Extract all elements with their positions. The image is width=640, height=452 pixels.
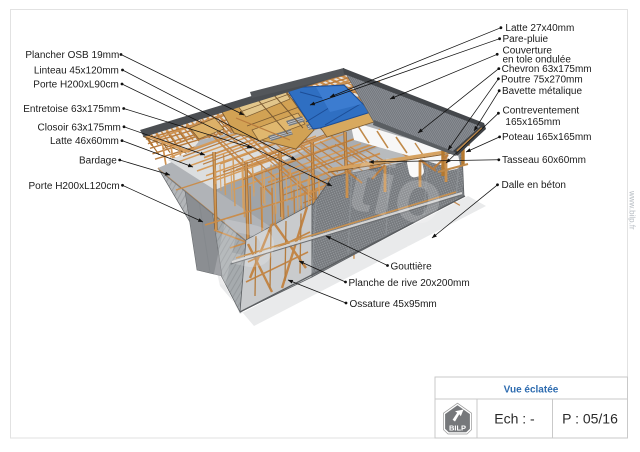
svg-text:Tasseau 60x60mm: Tasseau 60x60mm bbox=[502, 155, 586, 166]
svg-text:Porte H200xL120cm: Porte H200xL120cm bbox=[29, 181, 120, 192]
svg-text:Contreventement: Contreventement bbox=[503, 105, 580, 116]
svg-text:Plancher OSB 19mm: Plancher OSB 19mm bbox=[25, 50, 119, 61]
svg-text:Planche de rive 20x200mm: Planche de rive 20x200mm bbox=[349, 278, 470, 289]
svg-text:Latte 27x40mm: Latte 27x40mm bbox=[505, 23, 574, 34]
svg-text:Vue éclatée: Vue éclatée bbox=[504, 385, 559, 396]
svg-text:165x165mm: 165x165mm bbox=[505, 117, 560, 128]
svg-text:Linteau 45x120mm: Linteau 45x120mm bbox=[34, 66, 119, 77]
svg-text:Closoir 63x175mm: Closoir 63x175mm bbox=[38, 122, 121, 133]
svg-text:Ossature 45x95mm: Ossature 45x95mm bbox=[350, 299, 437, 310]
svg-text:Dalle en béton: Dalle en béton bbox=[502, 180, 567, 191]
svg-text:Latte 46x60mm: Latte 46x60mm bbox=[50, 136, 119, 147]
svg-text:Poutre 75x270mm: Poutre 75x270mm bbox=[501, 74, 583, 85]
svg-text:Bardage: Bardage bbox=[79, 156, 117, 167]
svg-text:Gouttière: Gouttière bbox=[391, 262, 433, 273]
svg-text:BILP: BILP bbox=[449, 424, 466, 433]
svg-text:www.bilp.fr: www.bilp.fr bbox=[628, 190, 637, 230]
svg-text:Ech : -: Ech : - bbox=[494, 411, 535, 427]
svg-text:Bavette métalique: Bavette métalique bbox=[502, 86, 582, 97]
svg-text:Poteau 165x165mm: Poteau 165x165mm bbox=[502, 132, 592, 143]
svg-text:Pare-pluie: Pare-pluie bbox=[503, 34, 549, 45]
svg-text:P : 05/16: P : 05/16 bbox=[562, 411, 618, 427]
svg-text:Entretoise 63x175mm: Entretoise 63x175mm bbox=[23, 104, 120, 115]
svg-text:Porte H200xL90cm: Porte H200xL90cm bbox=[33, 80, 119, 91]
